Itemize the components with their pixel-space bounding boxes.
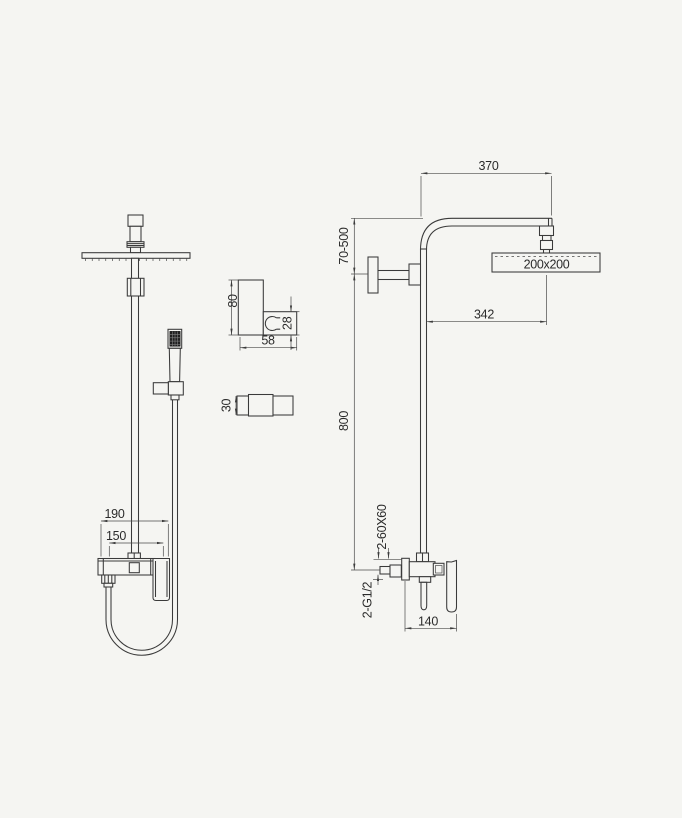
- mixer-valve-front: [98, 553, 170, 601]
- lever-handle-side: [447, 561, 457, 613]
- label-2-60x60: 2-60X60: [374, 504, 403, 559]
- dimension-800: 800: [337, 274, 380, 570]
- valve-body-side: [409, 562, 435, 577]
- label-2-g12: 2-G1/2: [361, 575, 384, 618]
- wall-bracket: [368, 257, 421, 293]
- dimension-370: 370: [421, 159, 552, 217]
- dim-370-label: 370: [479, 159, 499, 173]
- side-view: 200x200 370: [337, 159, 600, 632]
- slider-block: [127, 278, 144, 296]
- wall-escutcheon: [402, 558, 410, 580]
- dim-342-label: 342: [474, 308, 494, 322]
- mixer-valve-side: [380, 553, 457, 612]
- bracket-body: [238, 280, 263, 335]
- bracket-detail-view: 80 58 28: [226, 280, 300, 351]
- technical-drawing-sheet: 190 150: [0, 0, 682, 818]
- dim-58-label: 58: [261, 334, 275, 348]
- hand-shower-handle: [169, 348, 180, 381]
- dimension-58: 58: [240, 334, 297, 351]
- outlet-drop-tube: [421, 582, 427, 610]
- riser-pipe-side: [421, 249, 427, 553]
- head-ball-joint: [540, 226, 554, 253]
- bracket-top-detail-view: 30: [220, 395, 294, 417]
- dim-70-500-label: 70-500: [337, 227, 351, 264]
- diverter-button: [129, 563, 139, 573]
- dim-80-label: 80: [226, 294, 240, 308]
- dimension-30: 30: [220, 396, 237, 415]
- shower-dimension-drawing: 190 150: [0, 0, 682, 818]
- dim-140-label: 140: [418, 615, 438, 629]
- shower-hose: [106, 400, 178, 655]
- eccentric-union: [380, 567, 390, 575]
- dimension-342: 342: [427, 275, 547, 325]
- hose-outlet-fitting: [102, 575, 115, 587]
- inlet-thread-label: 2-G1/2: [361, 581, 375, 618]
- rain-shower-head-side: 200x200: [492, 253, 600, 272]
- dim-800-label: 800: [337, 411, 351, 431]
- arm-end-connector: [127, 215, 144, 253]
- head-size-label: 200x200: [524, 258, 570, 272]
- hand-shower-holder: [153, 382, 183, 400]
- front-view: 190 150: [82, 215, 190, 655]
- dim-30-label: 30: [220, 399, 234, 413]
- riser-pipe-front: [132, 258, 139, 553]
- dim-150-label: 150: [106, 529, 126, 543]
- dim-28-label: 28: [281, 316, 295, 330]
- escutcheon-spec-label: 2-60X60: [375, 504, 389, 550]
- hand-shower: [168, 329, 182, 381]
- dim-190-label: 190: [105, 507, 125, 521]
